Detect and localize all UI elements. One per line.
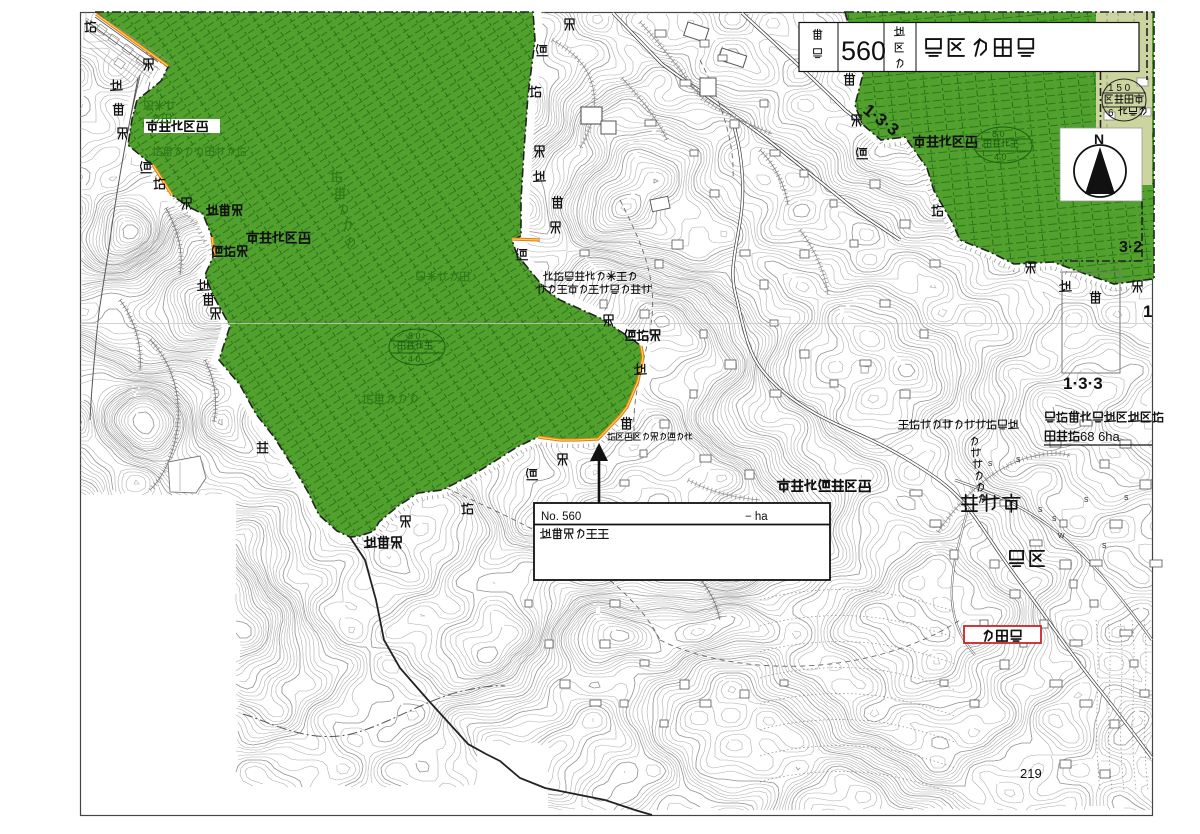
- svg-text:s: s: [1016, 454, 1021, 464]
- svg-text:560: 560: [841, 36, 886, 66]
- svg-text:w: w: [1057, 530, 1065, 540]
- svg-text:s: s: [1084, 494, 1089, 504]
- svg-text:s: s: [1038, 504, 1043, 514]
- svg-text:8 0: 8 0: [408, 331, 421, 341]
- svg-text:s: s: [988, 458, 993, 468]
- svg-text:1·3·3: 1·3·3: [1063, 374, 1103, 393]
- svg-text:1: 1: [1143, 302, 1152, 321]
- svg-text:6: 6: [1108, 108, 1114, 119]
- svg-text:s: s: [1052, 513, 1057, 523]
- svg-text:− ha: − ha: [745, 511, 768, 523]
- svg-text:s: s: [1102, 540, 1107, 550]
- svg-text:68 6ha: 68 6ha: [1080, 429, 1121, 444]
- svg-text:s: s: [1124, 492, 1129, 502]
- svg-text:s: s: [980, 491, 985, 501]
- svg-text:8 0: 8 0: [992, 129, 1005, 139]
- svg-text:4 0: 4 0: [408, 354, 421, 364]
- svg-text:3·2: 3·2: [1119, 239, 1142, 256]
- svg-text:219: 219: [1020, 766, 1042, 781]
- svg-text:4 0: 4 0: [994, 152, 1007, 162]
- svg-text:No. 560: No. 560: [541, 511, 581, 523]
- svg-text:1 5 0: 1 5 0: [1108, 83, 1131, 94]
